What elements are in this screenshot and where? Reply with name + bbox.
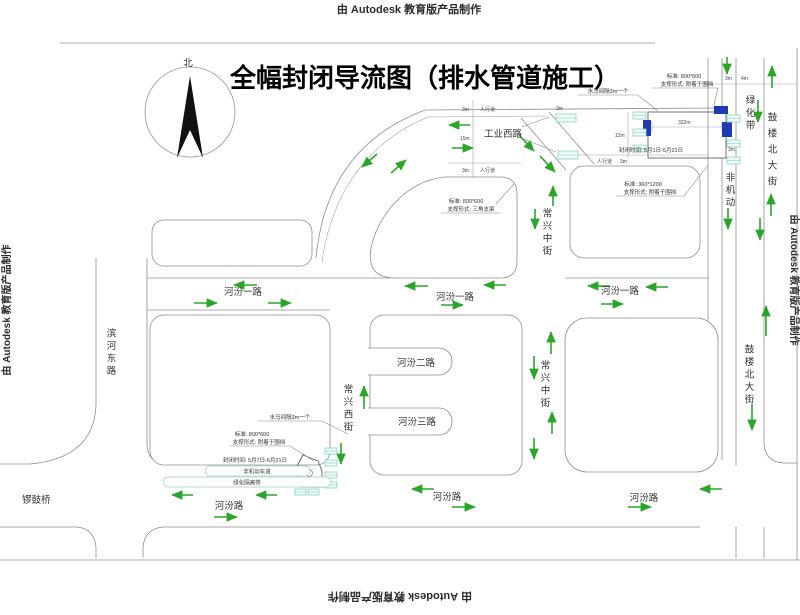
- flow-arrow: [362, 154, 377, 167]
- sign-board: [722, 122, 732, 137]
- road-label-hefen-lu-west: 河汾路: [215, 500, 244, 512]
- watermark-bottom: 由 Autodesk 教育版产品制作: [328, 590, 472, 604]
- north-arrow: 北: [145, 58, 235, 158]
- dim-3m: 3m: [728, 147, 735, 153]
- dim-3m: 3m: [556, 106, 563, 112]
- road-label-luogu-qiao: 锣鼓桥: [22, 494, 51, 506]
- cad-canvas: 由 Autodesk 教育版产品制作 由 Autodesk 教育版产品制作 由 …: [0, 0, 800, 610]
- drawing-sheet: 由 Autodesk 教育版产品制作 由 Autodesk 教育版产品制作 由 …: [0, 0, 800, 615]
- sign-spec-west-line2: 支撑形式: 三角支架: [447, 205, 495, 213]
- dim-3m: 3m: [620, 159, 627, 165]
- road-edge: [143, 527, 700, 558]
- city-blocks: [150, 166, 718, 475]
- block-middle-lower: [370, 315, 522, 475]
- flow-arrow: [391, 160, 406, 173]
- sign-spec-bottom-line1: 标准: 800*600: [235, 430, 270, 438]
- road-label-hefen-lu-east: 河汾路: [630, 492, 659, 504]
- north-needle-icon: [177, 76, 203, 158]
- road-label-hefen-yilu-center: 河汾一路: [436, 291, 475, 303]
- shuima-note-bottom: 水马间隔3m一个: [270, 413, 311, 421]
- sidewalk-label: 人行道: [480, 106, 495, 113]
- road-edge: [703, 80, 797, 88]
- road-edge: [0, 258, 96, 464]
- road-label-gulou-beidajie-upper: 鼓楼北大街: [766, 111, 778, 192]
- sign-spec-top-line1: 标准: 800*600: [667, 72, 702, 80]
- dim-3m: 3m: [462, 168, 469, 174]
- watermark-left: 由 Autodesk 教育版产品制作: [0, 244, 13, 375]
- dim-4m: 4m: [741, 76, 748, 82]
- block-industrial-south: [370, 177, 517, 278]
- sign-spec-bottom-line2: 支撑形式: 附着于围挡: [233, 438, 286, 446]
- sign-board: [714, 106, 728, 114]
- block-northwest: [152, 220, 312, 266]
- dim-3m: 3m: [462, 107, 469, 113]
- road-label-changxing-zhongjie-lower: 常兴中街: [539, 359, 551, 410]
- road-label-hefen-sanlu: 河汾三路: [398, 416, 437, 428]
- road-label-lvhuadai: 绿化带: [744, 94, 756, 132]
- road-label-feijidong: 非机动: [724, 171, 736, 209]
- north-label: 北: [183, 58, 193, 69]
- closure-time-top: 封闭时间: 5月1日-5月21日: [619, 146, 683, 154]
- closure-time-bottom: 封闭时间: 5月7日-6月21日: [223, 456, 287, 464]
- sign-spec-west-line1: 标准: 800*600: [449, 197, 484, 205]
- road-label-changxing-xijie: 常兴西街: [342, 383, 354, 434]
- watermark-top: 由 Autodesk 教育版产品制作: [337, 2, 481, 16]
- road-label-gulou-beidajie-lower: 鼓楼北大街: [743, 343, 755, 406]
- road-label-hefen-yilu-east: 河汾一路: [601, 285, 640, 297]
- watermark-right: 由 Autodesk 教育版产品制作: [788, 214, 800, 345]
- road-label-binhe-donglu: 滨河东路: [105, 327, 117, 378]
- flow-arrow: [540, 156, 555, 172]
- median-green-belt-label: 绿化隔离带: [233, 479, 261, 487]
- road-label-changxing-zhongjie-upper: 常兴中街: [541, 207, 553, 258]
- block-east-upper: [570, 166, 700, 258]
- sign-spec-top-line2: 支撑形式: 附着于围挡: [661, 80, 714, 88]
- sidewalk-label: 人行道: [480, 167, 495, 174]
- dim-3m: 3m: [725, 76, 732, 82]
- road-label-hefen-erlu: 河汾二路: [397, 357, 436, 369]
- road-label-hefen-lu-center: 河汾路: [433, 491, 462, 503]
- leader: [522, 117, 556, 152]
- block-east-lower: [565, 318, 718, 472]
- dim-15m: 15m: [460, 136, 470, 142]
- median-nonmotor-label: 非机动车道: [243, 468, 271, 476]
- sign-spec-east-line2: 支撑形式: 附着于围挡: [624, 188, 677, 196]
- dim-322m: 322m: [678, 120, 691, 126]
- sidewalk-label: 人行道: [597, 158, 612, 165]
- road-edge: [0, 527, 96, 558]
- page-title: 全幅封闭导流图（排水管道施工）: [229, 63, 620, 93]
- road-label-gongye-xilu: 工业西路: [484, 128, 523, 140]
- road-label-hefen-yilu-west: 河汾一路: [224, 286, 263, 298]
- shuima-note-top: 水马间隔3m一个: [588, 87, 629, 95]
- dim-12m: 12m: [615, 133, 625, 139]
- road-edge: [736, 527, 764, 558]
- sign-spec-east-line1: 标准: 360*1200: [624, 180, 662, 188]
